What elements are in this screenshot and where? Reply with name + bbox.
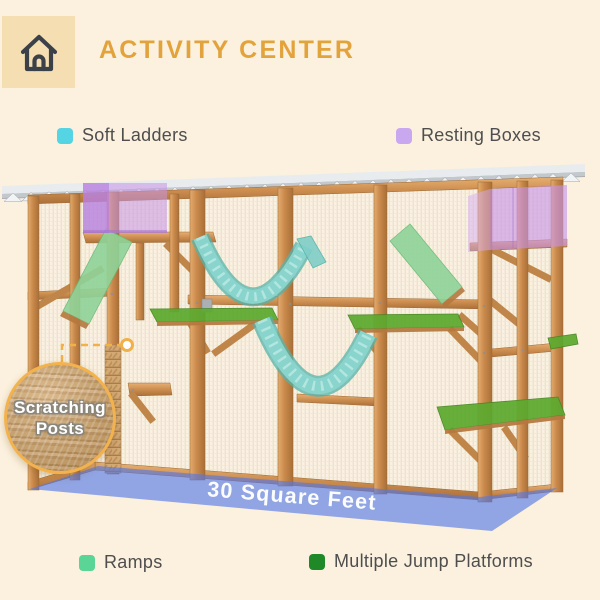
callout-target-ring [122, 340, 133, 351]
catio-illustration: 30 Square Feet [0, 0, 600, 600]
scratching-posts-callout: Scratching Posts [4, 362, 116, 474]
infographic-page: ACTIVITY CENTER Soft Ladders Resting Box… [0, 0, 600, 600]
scratching-posts-label: Scratching Posts [7, 365, 113, 471]
